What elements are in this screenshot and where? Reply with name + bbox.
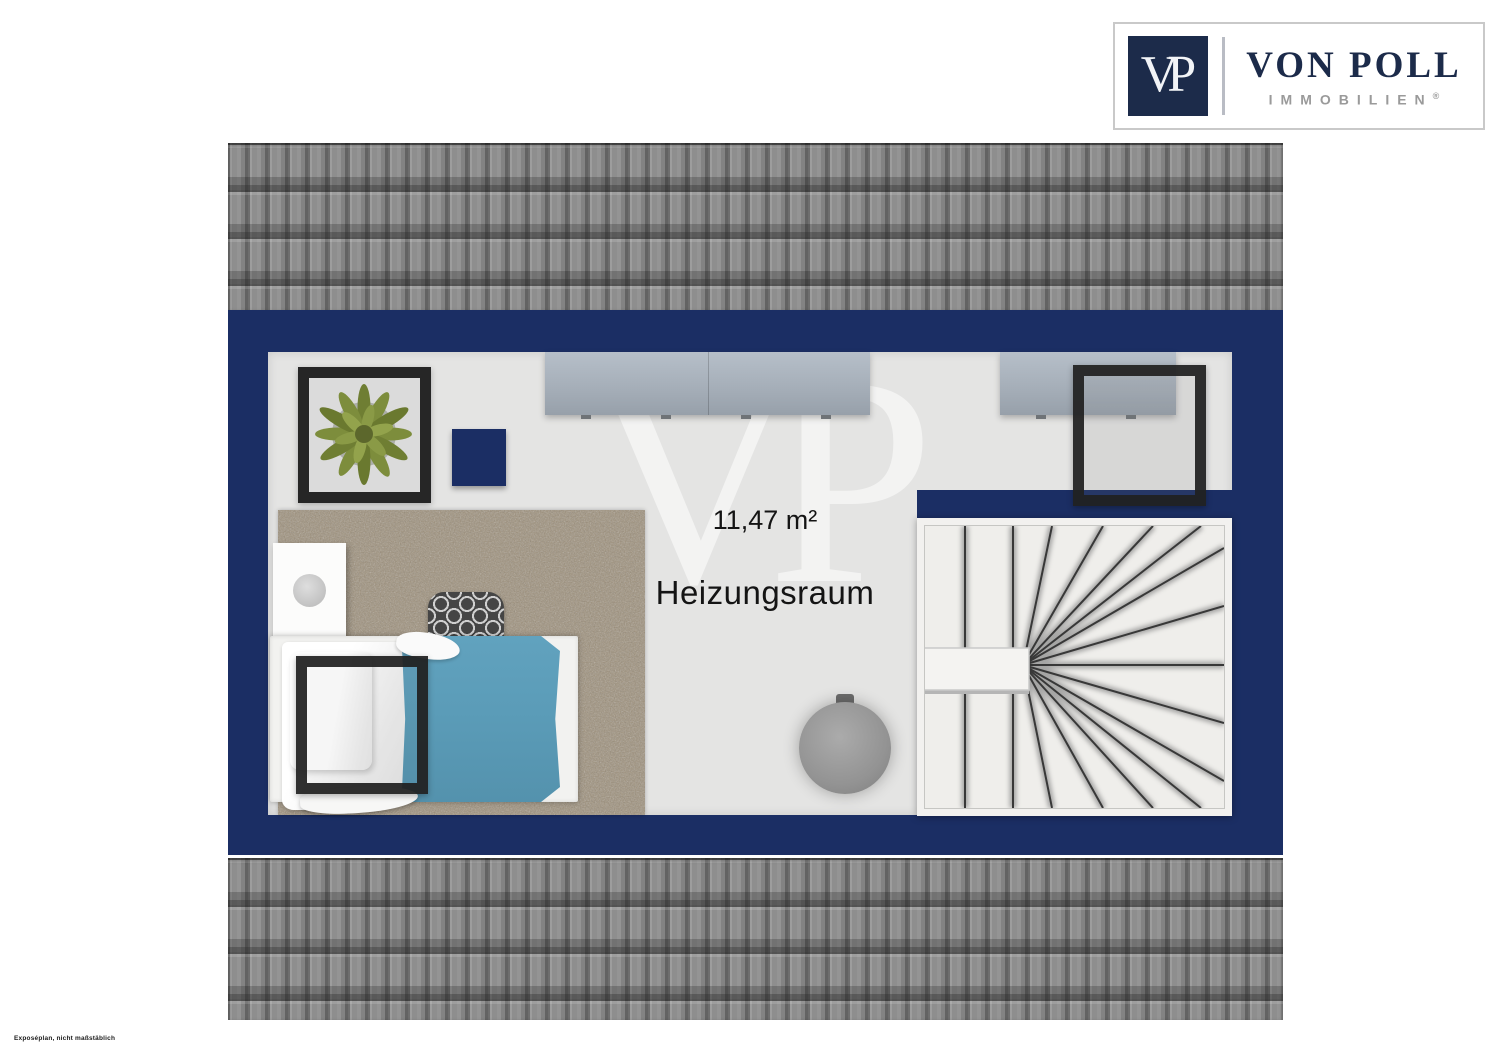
room-area-label: 11,47 m² [620, 505, 910, 536]
brand-subtitle-text: IMMOBILIEN [1269, 92, 1433, 108]
room-name-label: Heizungsraum [620, 574, 910, 612]
logo-text-block: VON POLL IMMOBILIEN® [1225, 44, 1483, 108]
sideboard-left [545, 352, 870, 415]
staircase-treads [925, 526, 1224, 808]
framed-plant [298, 367, 431, 503]
sideboard-feet [581, 415, 591, 419]
vonpoll-logo: VP VON POLL IMMOBILIEN® [1113, 22, 1485, 130]
registered-mark: ® [1433, 91, 1440, 101]
plant-icon [309, 379, 419, 489]
winder-staircase [917, 518, 1232, 816]
nightstand-lamp [293, 574, 326, 607]
nightstand [273, 543, 346, 637]
roof-tiles-bottom [228, 858, 1283, 1020]
vp-monogram-text: VP [1141, 45, 1195, 104]
heating-tank [799, 702, 891, 794]
sideboard-feet [1036, 415, 1046, 419]
floorplan-canvas: VP VON POLL IMMOBILIEN® VP [0, 0, 1500, 1060]
brand-name: VON POLL [1246, 44, 1461, 87]
disclaimer-text: Exposéplan, nicht maßstäblich [14, 1035, 115, 1042]
vp-monogram-icon: VP [1128, 36, 1208, 116]
roof-window-top-right [1073, 365, 1206, 506]
roof-tiles-top [228, 143, 1283, 310]
handrail [925, 648, 1029, 692]
brand-subtitle: IMMOBILIEN® [1269, 91, 1440, 108]
navy-stool [452, 429, 506, 486]
roof-window-over-bed [296, 656, 428, 794]
